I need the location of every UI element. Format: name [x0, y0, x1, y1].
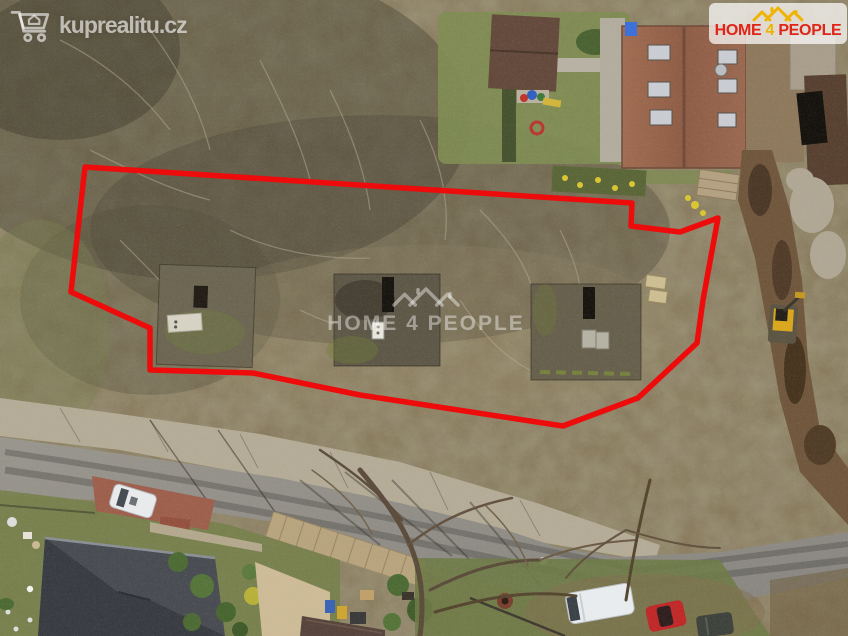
aerial-photo: kuprealitu.cz HOME 4 PEOPLE HOME 4 PEOPL… — [0, 0, 848, 636]
aerial-scene — [0, 0, 848, 636]
